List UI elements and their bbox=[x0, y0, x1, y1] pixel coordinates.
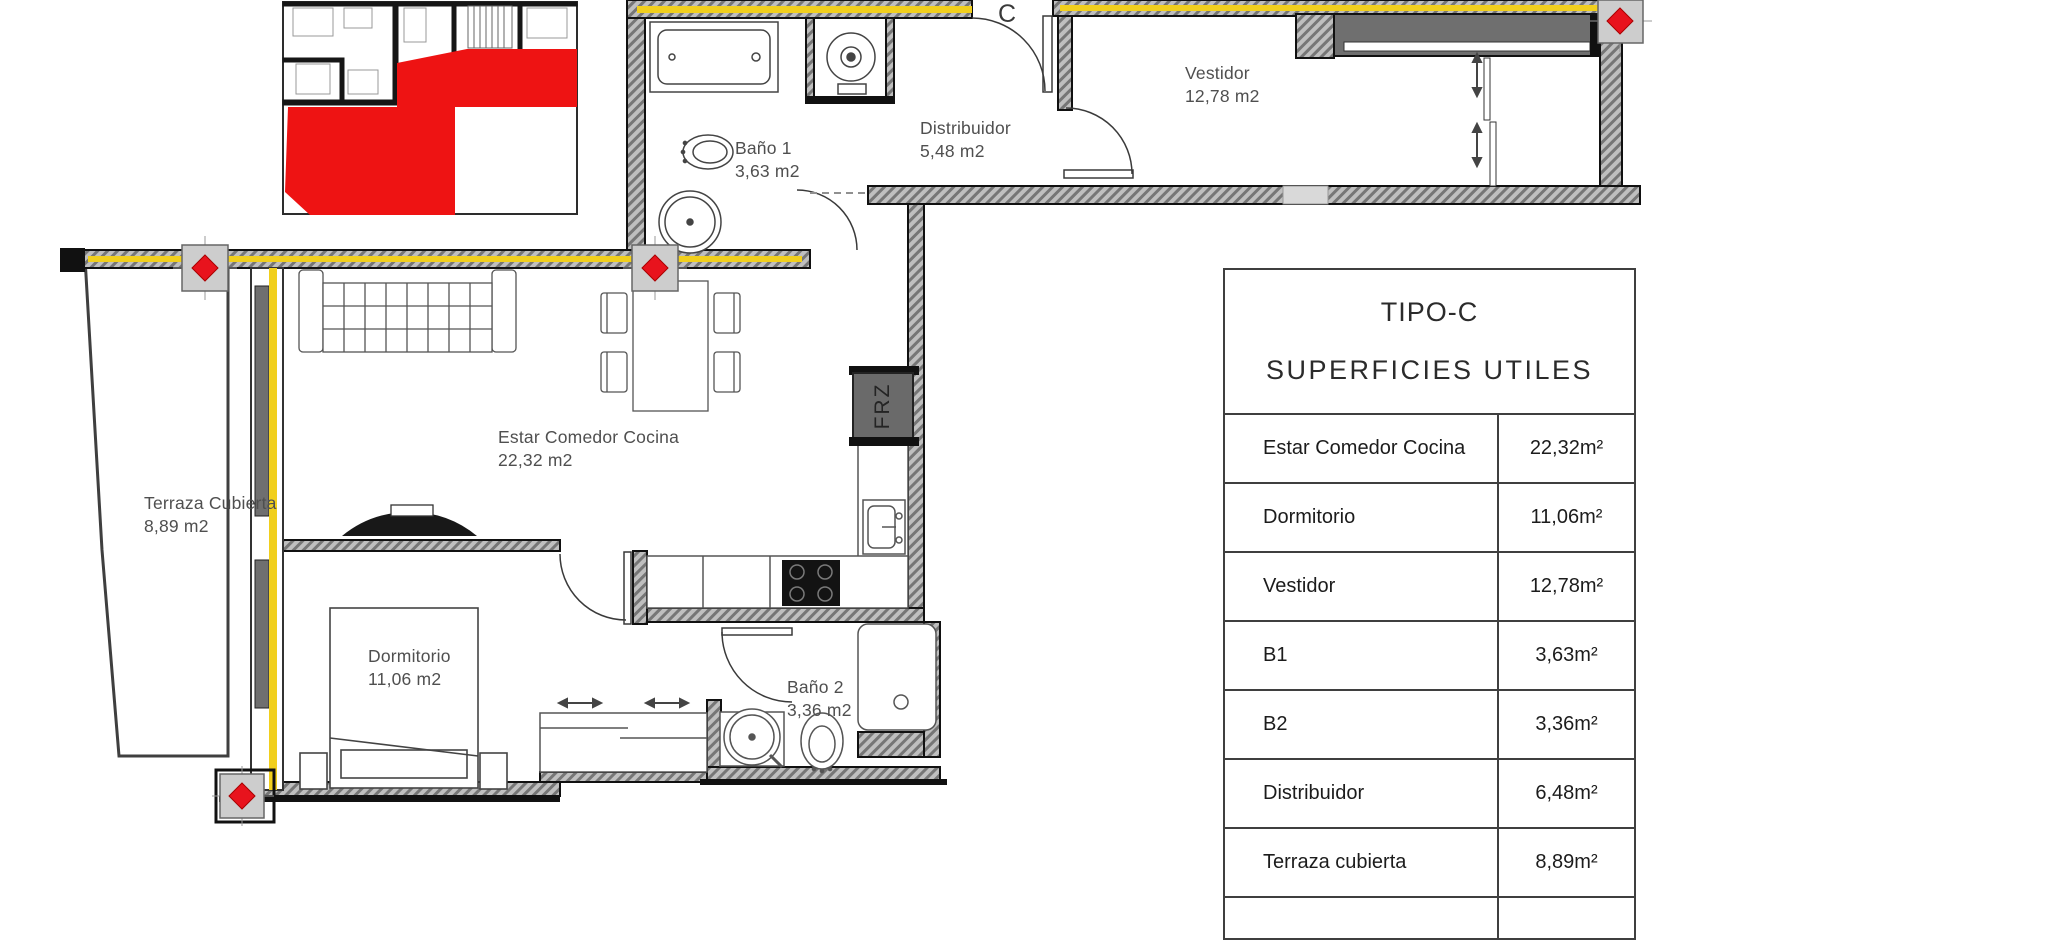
room-label-distribuidor: Distribuidor 5,48 m2 bbox=[920, 117, 1011, 163]
row-label: Estar Comedor Cocina bbox=[1225, 437, 1497, 460]
row-value: 3,36m² bbox=[1497, 691, 1634, 758]
row-value: 6,48m² bbox=[1497, 760, 1634, 827]
toilet-icon bbox=[681, 135, 733, 169]
tv-unit-icon bbox=[342, 505, 477, 536]
room-name: Baño 2 bbox=[787, 676, 852, 699]
bed-icon bbox=[300, 608, 507, 789]
room-name: Baño 1 bbox=[735, 137, 800, 160]
table-subtitle: SUPERFICIES UTILES bbox=[1266, 355, 1593, 386]
room-area: 8,89 m2 bbox=[144, 515, 277, 538]
dining-table-icon bbox=[601, 281, 740, 411]
vestidor-wardrobe bbox=[1334, 14, 1600, 56]
bedroom-wardrobe-icon bbox=[540, 713, 707, 772]
table-row: Vestidor 12,78m² bbox=[1225, 553, 1634, 622]
room-area: 5,48 m2 bbox=[920, 140, 1011, 163]
bath2-door-arc bbox=[722, 632, 792, 702]
bedroom-door-arc bbox=[560, 554, 626, 620]
shower-tray-icon bbox=[858, 624, 936, 730]
pillar-marker-icon bbox=[173, 236, 237, 300]
stove-icon bbox=[782, 560, 840, 606]
threshold bbox=[1283, 186, 1328, 204]
room-label-dormitorio: Dormitorio 11,06 m2 bbox=[368, 645, 451, 691]
room-name: Dormitorio bbox=[368, 645, 451, 668]
boiler-icon bbox=[827, 33, 875, 94]
room-name: Estar Comedor Cocina bbox=[498, 426, 679, 449]
row-label: Distribuidor bbox=[1225, 782, 1497, 805]
row-label: B1 bbox=[1225, 644, 1497, 667]
room-name: Distribuidor bbox=[920, 117, 1011, 140]
room-label-vestidor: Vestidor 12,78 m2 bbox=[1185, 62, 1260, 108]
bath1-door-arc bbox=[797, 190, 857, 250]
room-area: 11,06 m2 bbox=[368, 668, 451, 691]
room-label-bano2: Baño 2 3,36 m2 bbox=[787, 676, 852, 722]
key-plan-stairs bbox=[468, 6, 512, 48]
room-label-estar: Estar Comedor Cocina 22,32 m2 bbox=[498, 426, 679, 472]
bathtub-icon bbox=[650, 22, 778, 92]
sofa-icon bbox=[299, 270, 516, 352]
table-row: Distribuidor 6,48m² bbox=[1225, 760, 1634, 829]
row-value: 3,63m² bbox=[1497, 622, 1634, 689]
floor-plan-sheet: { "plan": { "entrance_label": "C", "appl… bbox=[0, 0, 2048, 900]
row-value: 8,89m² bbox=[1497, 829, 1634, 896]
room-label-terraza: Terraza Cubierta 8,89 m2 bbox=[144, 492, 277, 538]
room-area: 3,63 m2 bbox=[735, 160, 800, 183]
room-name: Terraza Cubierta bbox=[144, 492, 277, 515]
table-row: Estar Comedor Cocina 22,32m² bbox=[1225, 415, 1634, 484]
row-label: Terraza cubierta bbox=[1225, 851, 1497, 874]
pillar-marker-icon bbox=[623, 236, 687, 300]
row-value: 11,06m² bbox=[1497, 484, 1634, 551]
vanity-sink-icon bbox=[720, 709, 784, 767]
room-label-bano1: Baño 1 3,63 m2 bbox=[735, 137, 800, 183]
room-area: 22,32 m2 bbox=[498, 449, 679, 472]
row-label: Dormitorio bbox=[1225, 506, 1497, 529]
floor-plan bbox=[0, 0, 2048, 900]
room-area: 3,36 m2 bbox=[787, 699, 852, 722]
entrance-type-label: C bbox=[998, 0, 1016, 29]
surfaces-table: TIPO-C SUPERFICIES UTILES Estar Comedor … bbox=[1223, 268, 1636, 940]
kitchen-sink-icon bbox=[863, 500, 905, 554]
table-title: TIPO-C bbox=[1381, 297, 1479, 328]
row-label: B2 bbox=[1225, 713, 1497, 736]
table-row: Terraza cubierta 8,89m² bbox=[1225, 829, 1634, 898]
table-row-partial bbox=[1225, 898, 1634, 938]
row-value: 22,32m² bbox=[1497, 415, 1634, 482]
row-value: 12,78m² bbox=[1497, 553, 1634, 620]
row-value bbox=[1497, 898, 1634, 938]
sliding-closet bbox=[1484, 58, 1496, 186]
table-row: Dormitorio 11,06m² bbox=[1225, 484, 1634, 553]
key-plan bbox=[283, 2, 577, 215]
table-row: B2 3,36m² bbox=[1225, 691, 1634, 760]
room-name: Vestidor bbox=[1185, 62, 1260, 85]
row-label: Vestidor bbox=[1225, 575, 1497, 598]
vestidor-door-arc bbox=[1066, 108, 1132, 174]
fridge-label: FRZ bbox=[850, 376, 916, 436]
surfaces-table-header: TIPO-C SUPERFICIES UTILES bbox=[1225, 270, 1634, 415]
pillar-marker-icon bbox=[212, 766, 274, 826]
room-area: 12,78 m2 bbox=[1185, 85, 1260, 108]
table-row: B1 3,63m² bbox=[1225, 622, 1634, 691]
